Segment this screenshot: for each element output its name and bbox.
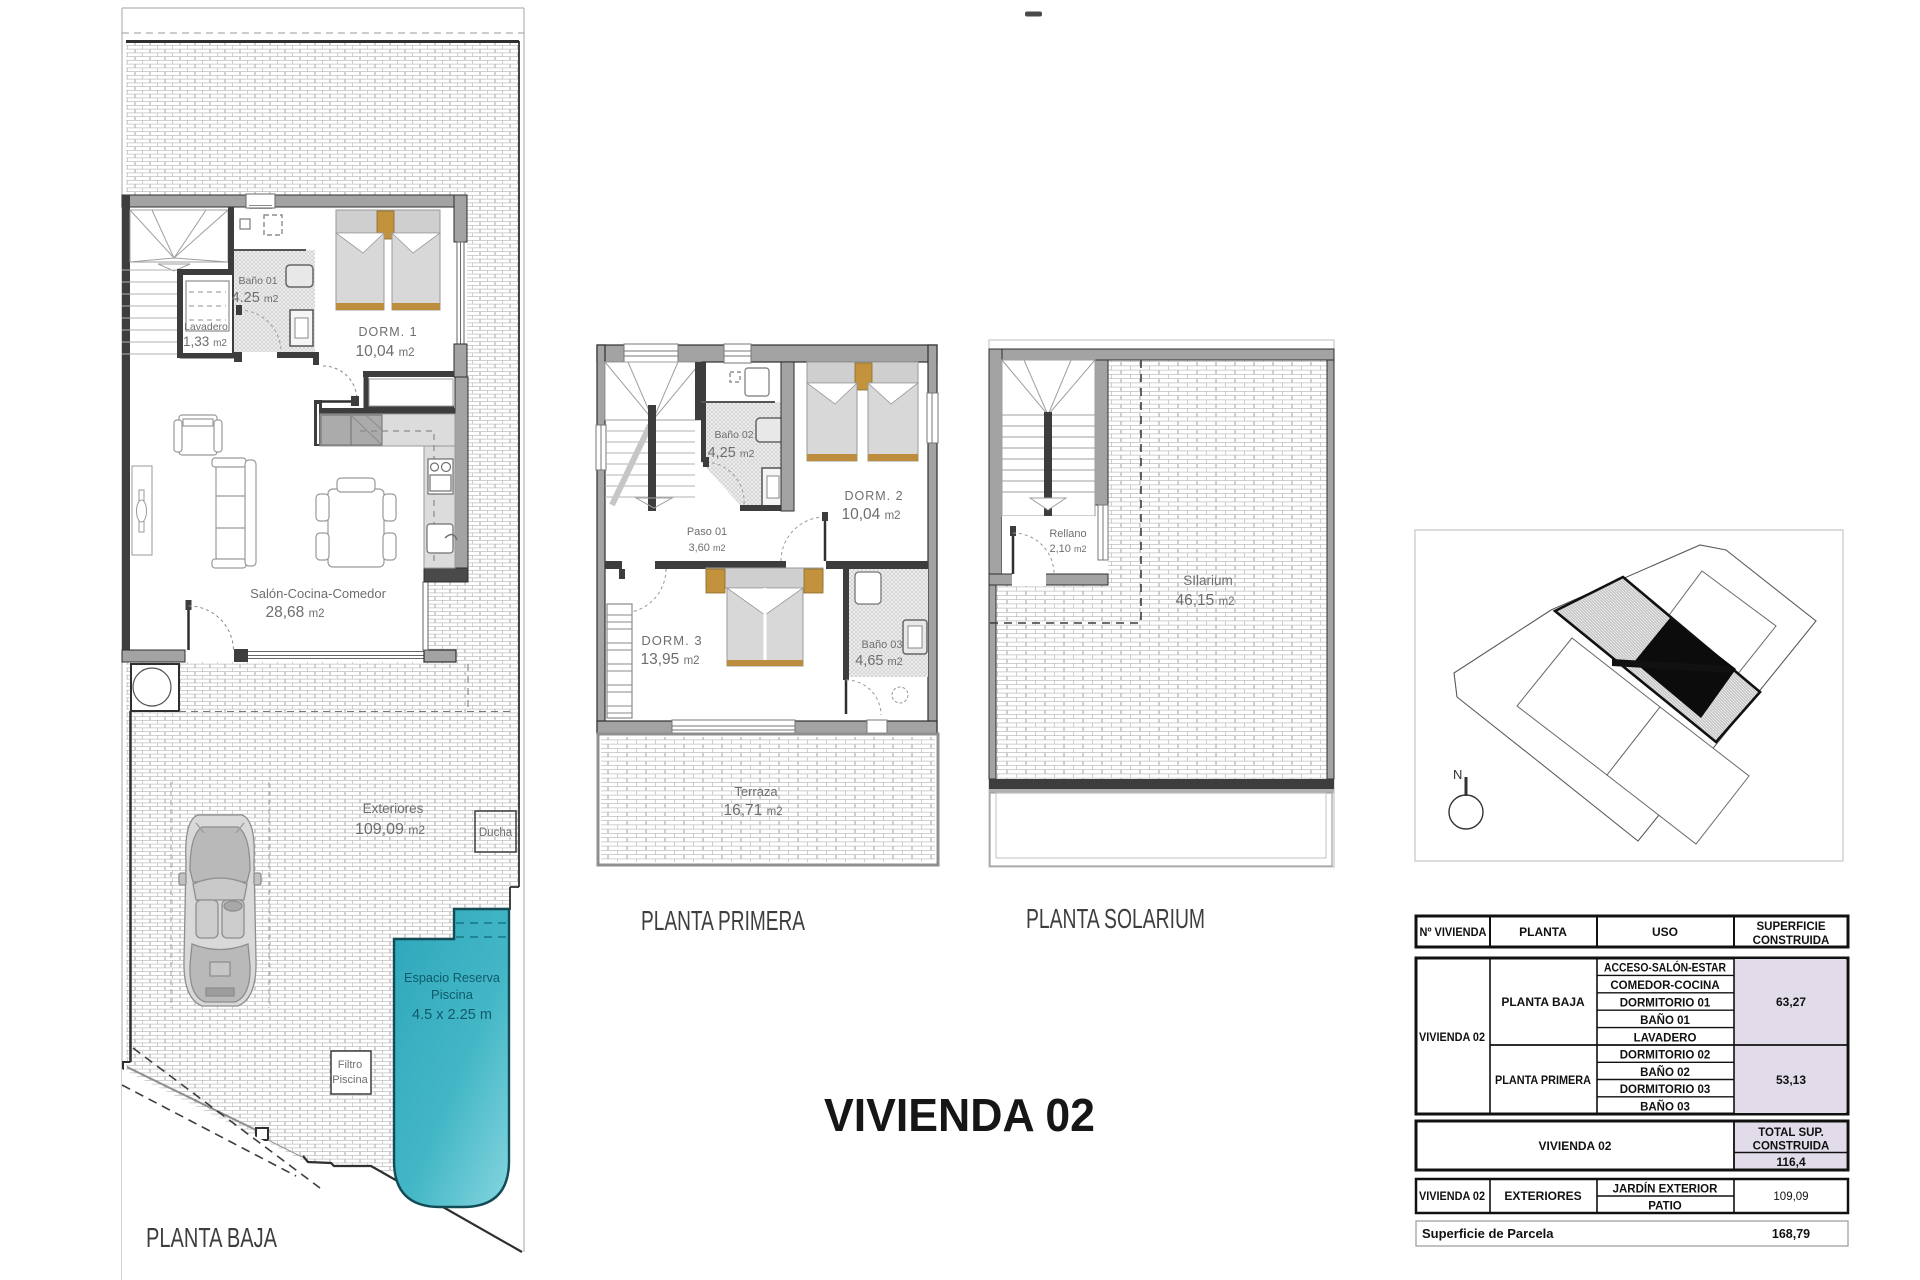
svg-text:4,65 m2: 4,65 m2: [855, 653, 903, 669]
svg-text:PATIO: PATIO: [1648, 1201, 1681, 1213]
svg-text:VIVIENDA 02: VIVIENDA 02: [1419, 1189, 1485, 1203]
svg-text:2,10 m2: 2,10 m2: [1050, 543, 1087, 555]
svg-text:Superficie de Parcela: Superficie de Parcela: [1422, 1226, 1554, 1241]
svg-text:DORMITORIO 03: DORMITORIO 03: [1620, 1084, 1711, 1096]
svg-text:Baño 01: Baño 01: [238, 275, 277, 287]
svg-text:PLANTA: PLANTA: [1519, 925, 1567, 939]
svg-text:Baño 02: Baño 02: [714, 429, 753, 441]
svg-text:Piscina: Piscina: [332, 1074, 368, 1086]
svg-text:168,79: 168,79: [1772, 1227, 1810, 1241]
svg-text:DORM. 1: DORM. 1: [358, 325, 417, 339]
svg-text:Lavadero: Lavadero: [184, 321, 228, 333]
svg-text:COMEDOR-COCINA: COMEDOR-COCINA: [1610, 980, 1719, 992]
svg-text:109,09: 109,09: [1773, 1191, 1808, 1203]
svg-text:63,27: 63,27: [1776, 995, 1806, 1009]
svg-text:53,13: 53,13: [1776, 1073, 1806, 1087]
svg-text:CONSTRUIDA: CONSTRUIDA: [1753, 935, 1830, 947]
svg-text:VIVIENDA 02: VIVIENDA 02: [1419, 1030, 1485, 1044]
svg-text:EXTERIORES: EXTERIORES: [1504, 1189, 1581, 1203]
svg-text:Filtro: Filtro: [338, 1059, 362, 1071]
svg-text:DORM. 3: DORM. 3: [641, 633, 702, 648]
svg-text:4.25 m2: 4.25 m2: [232, 290, 279, 306]
svg-text:PLANTA PRIMERA: PLANTA PRIMERA: [1495, 1073, 1591, 1087]
svg-text:Ducha: Ducha: [479, 827, 513, 839]
svg-text:Terraza: Terraza: [734, 784, 778, 799]
svg-text:PLANTA PRIMERA: PLANTA PRIMERA: [641, 905, 805, 936]
svg-text:LAVADERO: LAVADERO: [1634, 1032, 1697, 1044]
svg-text:109,09 m2: 109,09 m2: [355, 821, 425, 838]
svg-text:3,60 m2: 3,60 m2: [689, 542, 726, 554]
svg-text:PLANTA BAJA: PLANTA BAJA: [146, 1222, 277, 1253]
svg-text:BAÑO 03: BAÑO 03: [1640, 1100, 1690, 1113]
svg-text:JARDÍN EXTERIOR: JARDÍN EXTERIOR: [1613, 1183, 1718, 1196]
svg-text:4,25 m2: 4,25 m2: [708, 445, 755, 461]
svg-text:Piscina: Piscina: [431, 987, 474, 1002]
svg-text:ACCESO-SALÓN-ESTAR: ACCESO-SALÓN-ESTAR: [1604, 962, 1727, 975]
svg-text:DORMITORIO 01: DORMITORIO 01: [1620, 998, 1711, 1010]
svg-text:Salón-Cocina-Comedor: Salón-Cocina-Comedor: [250, 586, 387, 601]
svg-text:VIVIENDA 02: VIVIENDA 02: [1539, 1139, 1612, 1153]
svg-text:116,4: 116,4: [1776, 1155, 1806, 1169]
svg-text:BAÑO 01: BAÑO 01: [1640, 1014, 1690, 1027]
svg-text:Nº VIVIENDA: Nº VIVIENDA: [1420, 925, 1487, 939]
svg-text:DORMITORIO 02: DORMITORIO 02: [1620, 1050, 1711, 1062]
svg-text:Rellano: Rellano: [1049, 528, 1086, 540]
svg-text:VIVIENDA 02: VIVIENDA 02: [824, 1089, 1095, 1141]
svg-text:Baño 03: Baño 03: [862, 639, 903, 651]
svg-text:SIlarium: SIlarium: [1183, 573, 1233, 588]
svg-text:N: N: [1453, 767, 1462, 782]
svg-text:Espacio Reserva: Espacio Reserva: [404, 970, 501, 985]
svg-text:BAÑO 02: BAÑO 02: [1640, 1066, 1690, 1079]
svg-text:USO: USO: [1652, 925, 1678, 939]
svg-text:TOTAL SUP.: TOTAL SUP.: [1758, 1127, 1824, 1139]
svg-text:SUPERFICIE: SUPERFICIE: [1756, 921, 1825, 933]
svg-text:PLANTA SOLARIUM: PLANTA SOLARIUM: [1026, 903, 1205, 934]
svg-text:CONSTRUIDA: CONSTRUIDA: [1753, 1141, 1830, 1153]
svg-text:DORM. 2: DORM. 2: [844, 489, 903, 503]
svg-text:Paso 01: Paso 01: [687, 526, 727, 538]
svg-text:PLANTA BAJA: PLANTA BAJA: [1501, 995, 1585, 1009]
svg-text:4.5 x 2.25 m: 4.5 x 2.25 m: [412, 1007, 492, 1023]
svg-text:Exteriores: Exteriores: [363, 801, 424, 816]
